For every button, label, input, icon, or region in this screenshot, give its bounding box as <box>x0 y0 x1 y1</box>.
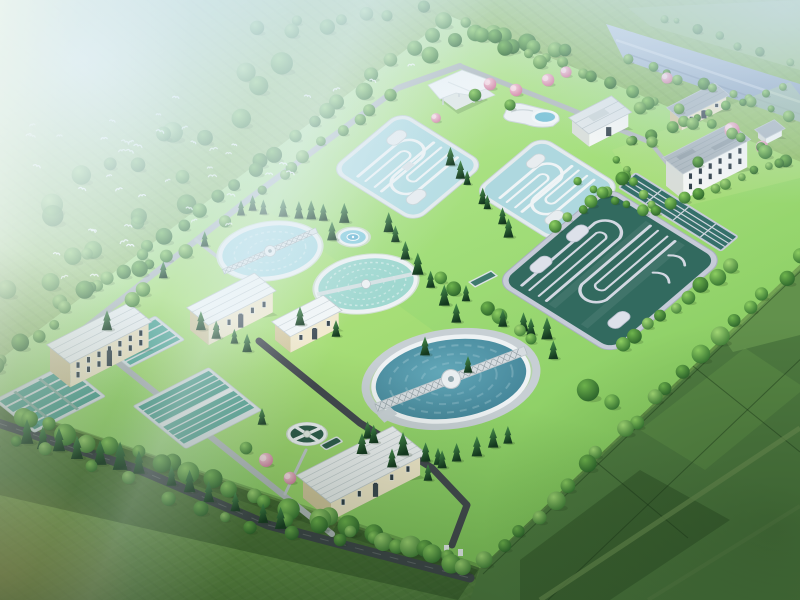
aerial-rendering <box>0 0 800 600</box>
field-shadow-bottom-right <box>0 0 800 600</box>
